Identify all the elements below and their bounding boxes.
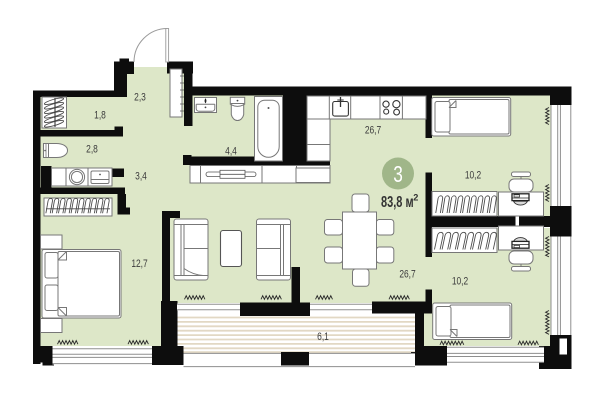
svg-text:2,8: 2,8: [86, 144, 98, 156]
svg-text:3: 3: [393, 163, 403, 188]
svg-text:83,8 м: 83,8 м: [381, 193, 414, 210]
svg-text:2: 2: [413, 193, 418, 203]
svg-text:26,7: 26,7: [399, 269, 415, 281]
svg-text:1,8: 1,8: [94, 110, 106, 122]
svg-text:2,3: 2,3: [134, 92, 146, 104]
svg-text:6,1: 6,1: [317, 331, 329, 343]
svg-text:3,4: 3,4: [135, 171, 147, 183]
svg-text:10,2: 10,2: [465, 170, 481, 182]
svg-text:12,7: 12,7: [131, 258, 147, 270]
svg-text:10,2: 10,2: [452, 276, 468, 288]
svg-text:26,7: 26,7: [365, 125, 381, 137]
svg-text:4,4: 4,4: [225, 146, 237, 158]
